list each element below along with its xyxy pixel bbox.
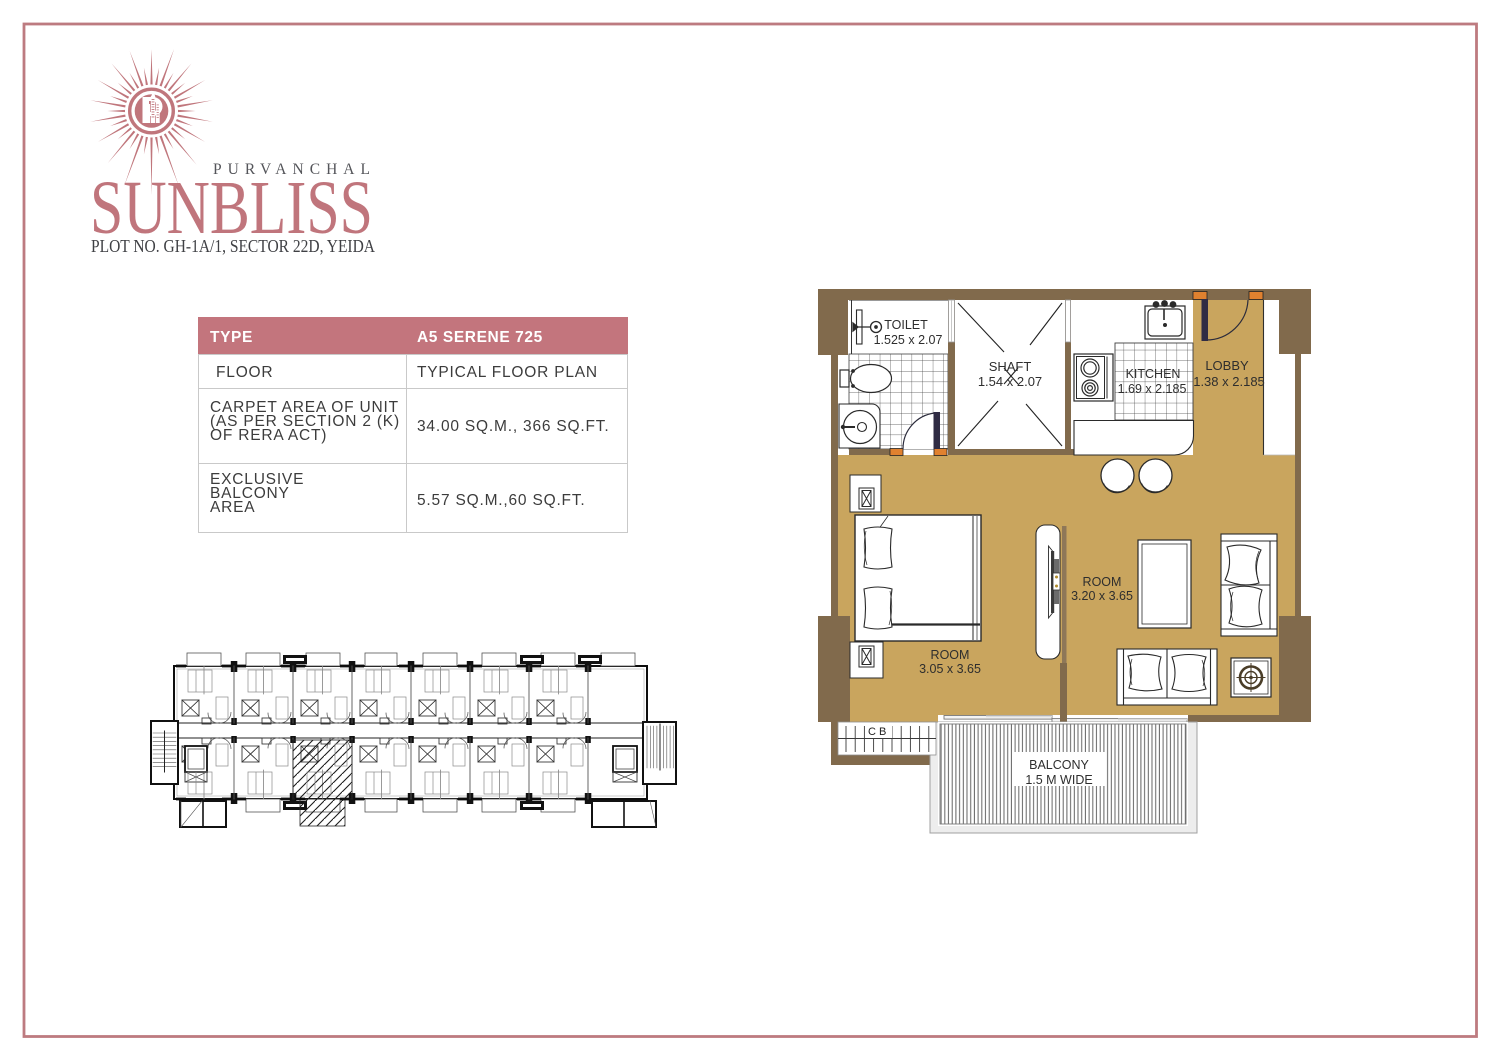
svg-text:34.00 SQ.M., 366 SQ.FT.: 34.00 SQ.M., 366 SQ.FT. [417,418,609,435]
svg-text:TYPE: TYPE [210,329,253,346]
svg-text:ROOM: ROOM [1083,575,1122,589]
svg-text:AREA: AREA [210,499,255,516]
svg-text:OF RERA ACT): OF RERA ACT) [210,427,327,444]
svg-text:BALCONY: BALCONY [1029,758,1089,772]
svg-text:1.525 x 2.07: 1.525 x 2.07 [874,333,943,347]
svg-text:SHAFT: SHAFT [989,359,1032,374]
svg-text:KITCHEN: KITCHEN [1126,367,1181,381]
svg-text:3.05 x 3.65: 3.05 x 3.65 [919,662,981,676]
svg-text:1.54 x 2.07: 1.54 x 2.07 [978,374,1042,389]
svg-text:LOBBY: LOBBY [1205,358,1249,373]
svg-text:A5 SERENE 725: A5 SERENE 725 [417,329,543,346]
svg-text:1.38 x 2.185: 1.38 x 2.185 [1193,374,1265,389]
svg-text:C B: C B [868,726,886,738]
svg-text:3.20 x 3.65: 3.20 x 3.65 [1071,589,1133,603]
svg-text:1.69 x 2.185: 1.69 x 2.185 [1118,382,1187,396]
svg-text:1.5 M WIDE: 1.5 M WIDE [1025,773,1092,787]
svg-text:PLOT NO. GH-1A/1, SECTOR 22D,: PLOT NO. GH-1A/1, SECTOR 22D, YEIDA [91,236,375,256]
svg-text:TOILET: TOILET [884,318,928,332]
svg-text:ROOM: ROOM [931,648,970,662]
svg-text:5.57 SQ.M.,60 SQ.FT.: 5.57 SQ.M.,60 SQ.FT. [417,492,585,509]
svg-text:FLOOR: FLOOR [216,364,273,381]
svg-text:TYPICAL FLOOR PLAN: TYPICAL FLOOR PLAN [417,364,598,381]
